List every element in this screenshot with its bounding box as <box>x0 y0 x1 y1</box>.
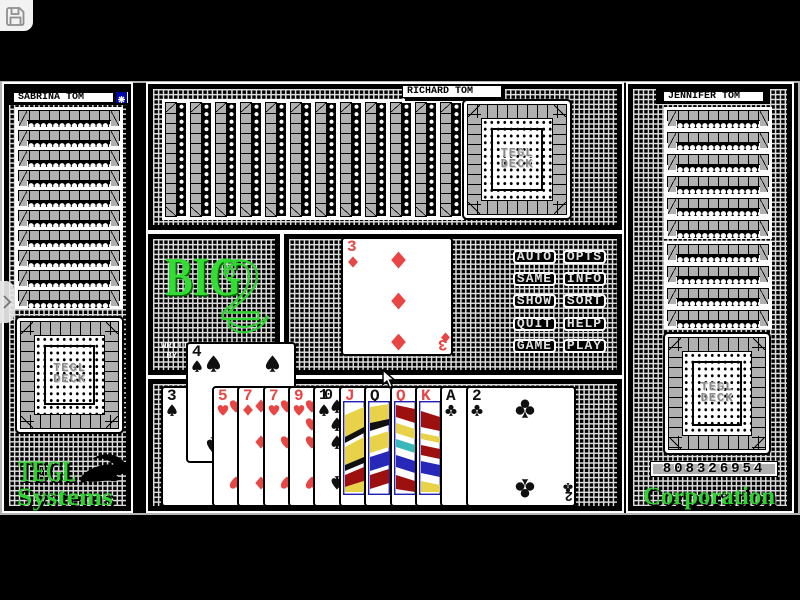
svg-text:Systems: Systems <box>17 484 113 511</box>
svg-text:Corporation: Corporation <box>643 483 775 510</box>
